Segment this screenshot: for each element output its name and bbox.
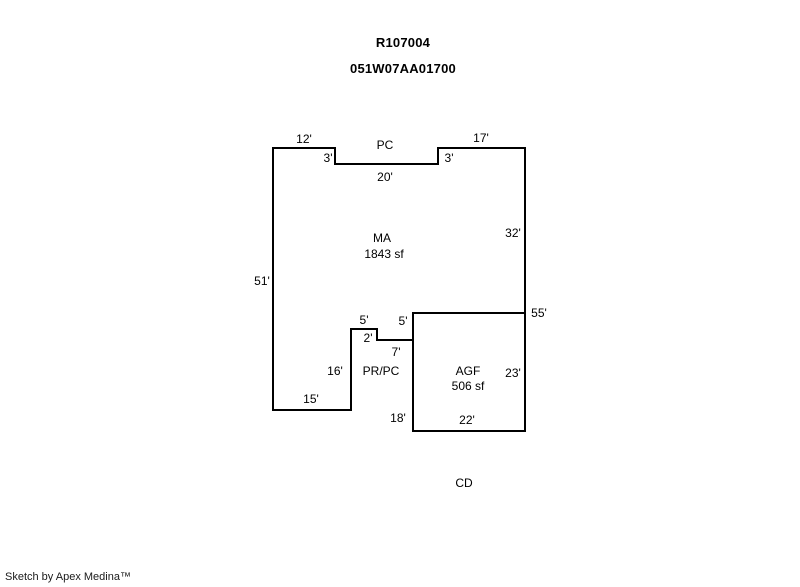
dim-notch-left-3: 3' [324, 152, 333, 164]
room-code-agf: AGF [456, 365, 481, 377]
area-ma-sqft: 1843 sf [364, 248, 403, 260]
sketch-credit: Sketch by Apex Medina™ [5, 571, 131, 583]
dim-step-left-5: 5' [360, 314, 369, 326]
dim-left-16: 16' [327, 365, 343, 377]
dim-right-55: 55' [531, 307, 547, 319]
dim-bottom-15: 15' [303, 393, 319, 405]
sketch-page: R107004 051W07AA01700 12'PC17'3'3'20'MA1… [0, 0, 800, 587]
dim-step-7: 7' [392, 346, 401, 358]
dim-notch-bottom-20: 20' [377, 171, 393, 183]
room-code-pc: PC [377, 139, 394, 151]
area-agf-sqft: 506 sf [452, 380, 485, 392]
dim-step-right-5: 5' [399, 315, 408, 327]
dim-top-right-17: 17' [473, 132, 489, 144]
dim-step-2: 2' [364, 332, 373, 344]
dim-right-32: 32' [505, 227, 521, 239]
dim-agf-right-23: 23' [505, 367, 521, 379]
floor-plan-drawing [0, 0, 800, 587]
room-code-cd: CD [455, 477, 472, 489]
dim-left-51: 51' [254, 275, 270, 287]
dim-agf-bottom-22: 22' [459, 414, 475, 426]
room-code-ma: MA [373, 232, 391, 244]
room-code-prpc: PR/PC [363, 365, 400, 377]
dim-agf-left-18: 18' [390, 412, 406, 424]
dim-top-left-12: 12' [296, 133, 312, 145]
dim-notch-right-3: 3' [445, 152, 454, 164]
